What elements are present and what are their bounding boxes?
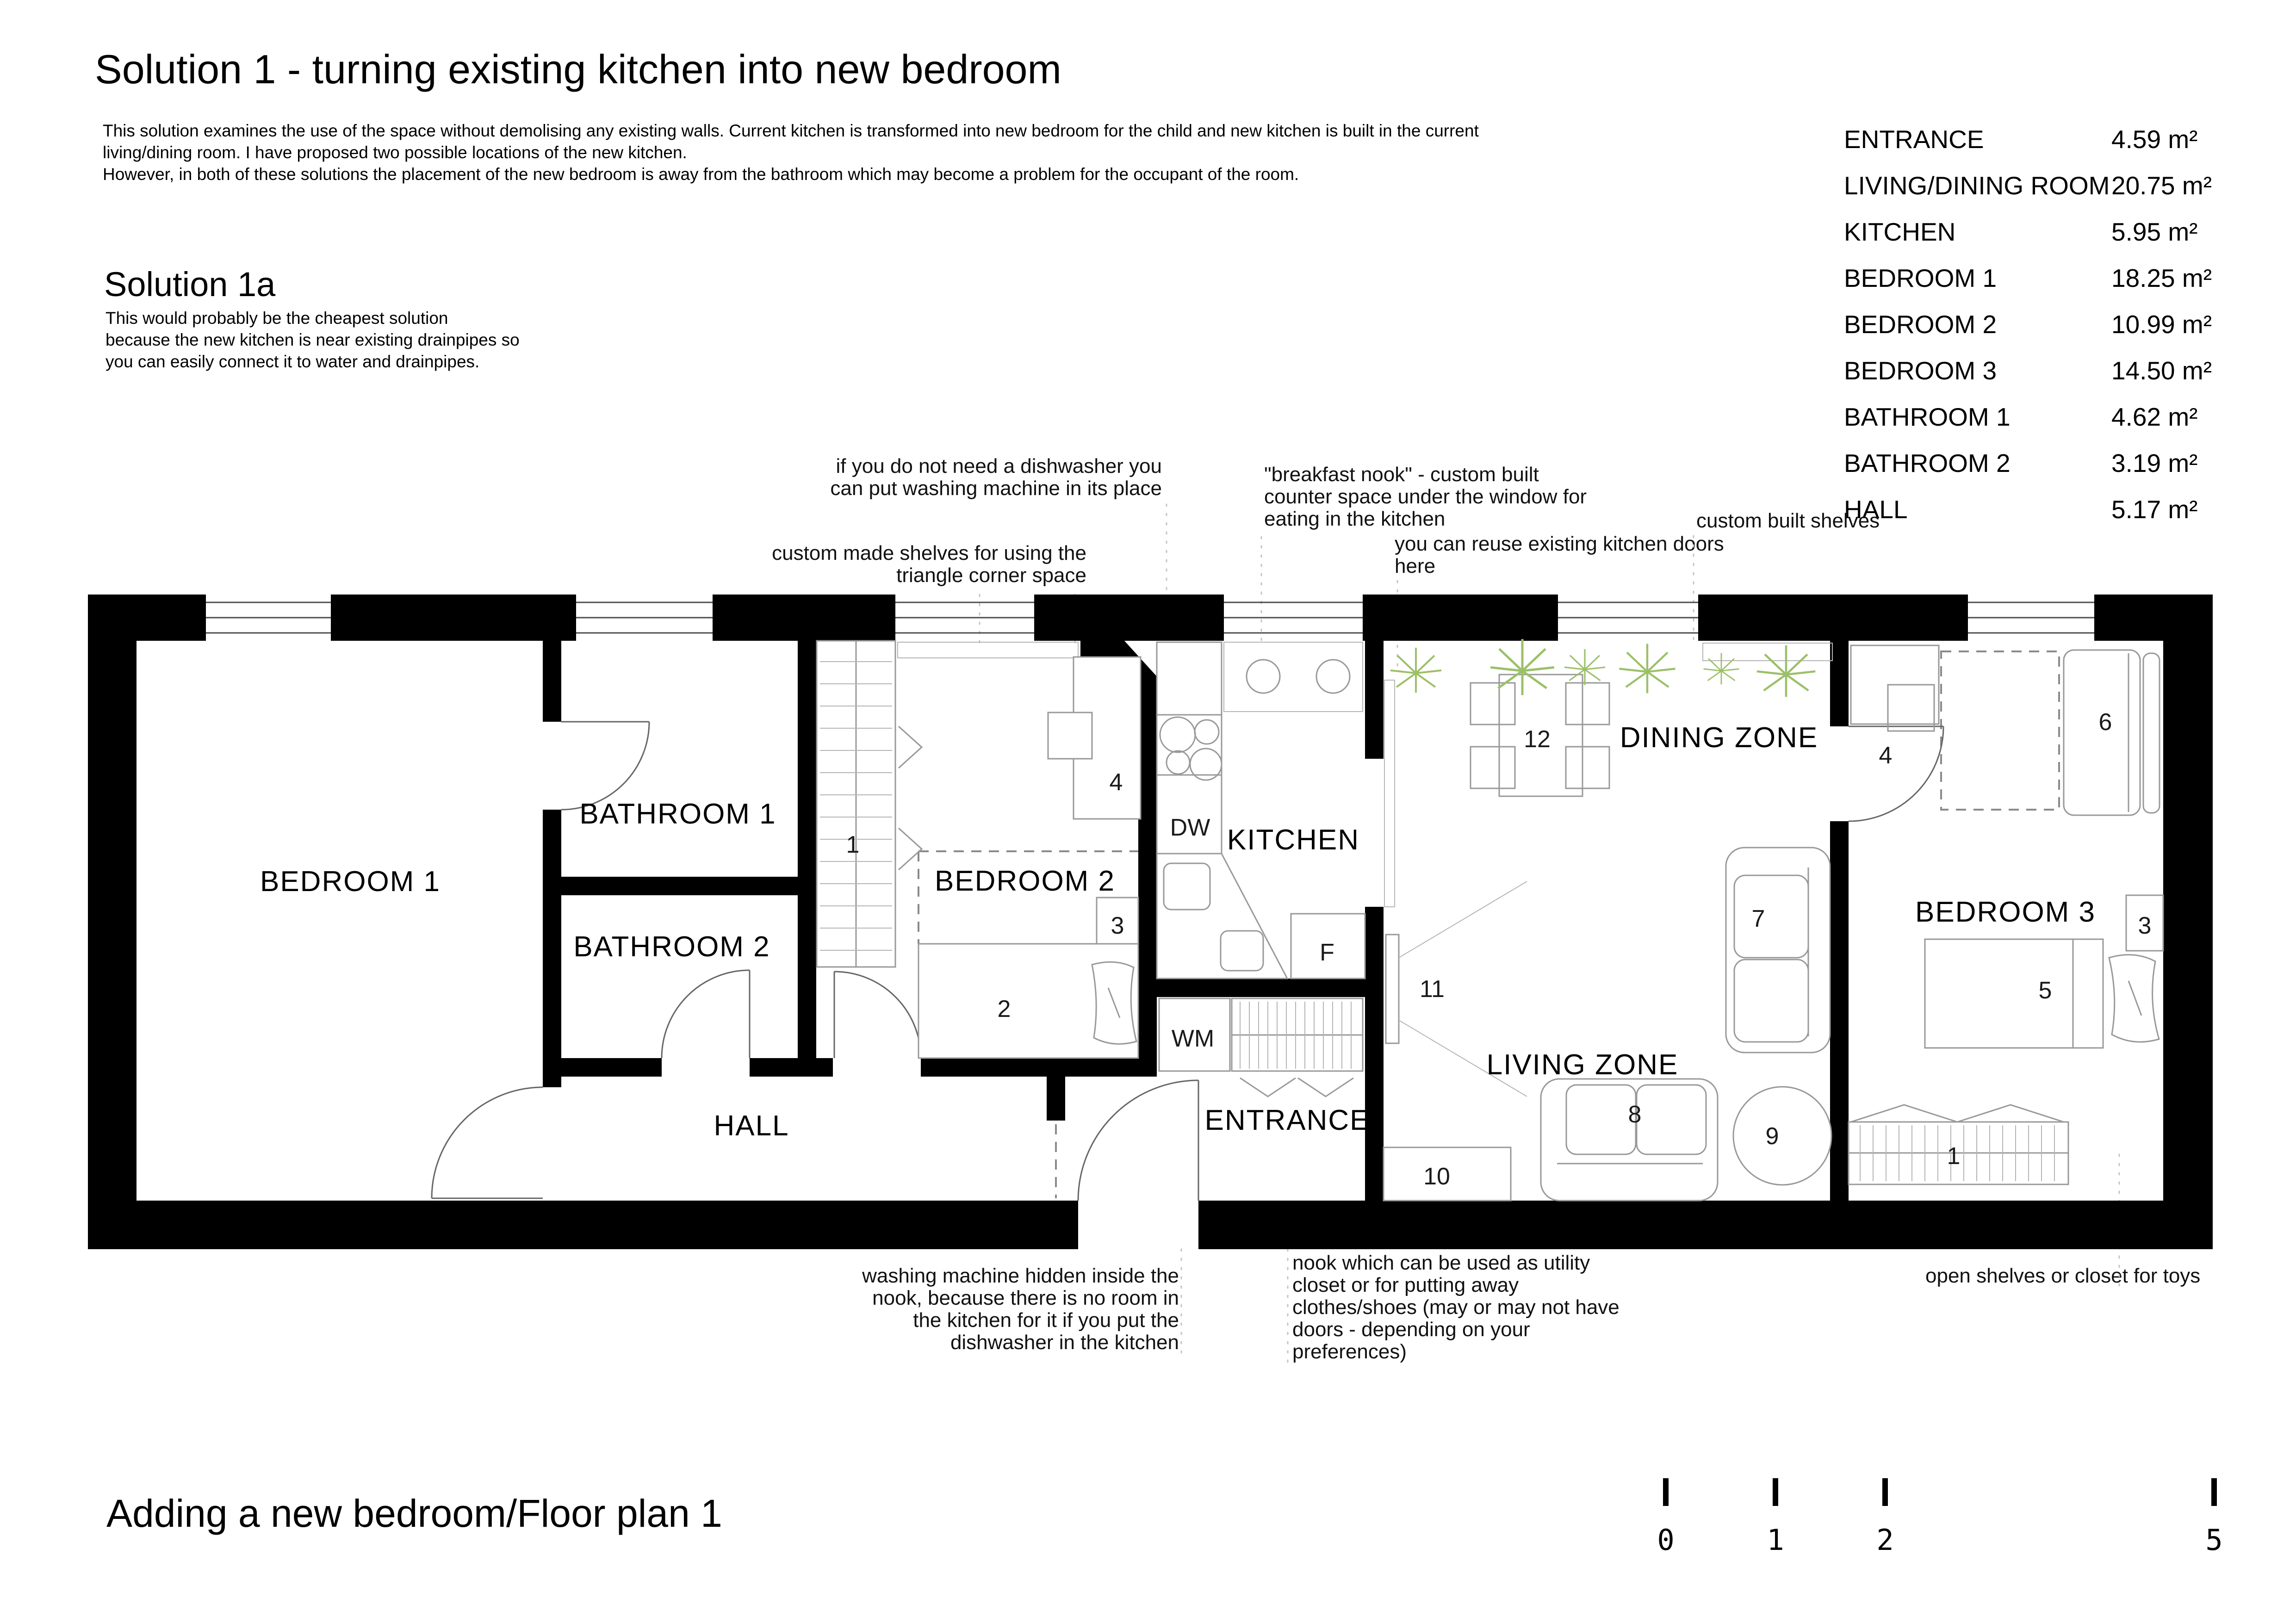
area-value: 20.75 m² bbox=[2111, 171, 2212, 200]
annotation-dishwasher: can put washing machine in its place bbox=[830, 477, 1162, 500]
area-room: BEDROOM 1 bbox=[1844, 264, 1997, 292]
annotation-nook-utility: closet or for putting away bbox=[1292, 1274, 1519, 1296]
bedroom1-door bbox=[432, 1087, 543, 1198]
annotation-custom-shelves: custom built shelves bbox=[1696, 509, 1880, 532]
annotation-nook-utility: preferences) bbox=[1292, 1340, 1407, 1363]
label-bedroom3: BEDROOM 3 bbox=[1915, 896, 2096, 928]
area-room: BEDROOM 3 bbox=[1844, 356, 1997, 385]
label-washing-machine: WM bbox=[1172, 1025, 1214, 1052]
label-dishwasher: DW bbox=[1170, 814, 1210, 841]
header: Solution 1 - turning existing kitchen in… bbox=[95, 46, 1479, 371]
intro-line: This solution examines the use of the sp… bbox=[103, 121, 1479, 140]
area-value: 14.50 m² bbox=[2111, 356, 2212, 385]
window bbox=[1968, 602, 2094, 633]
window bbox=[206, 602, 331, 633]
area-room: BEDROOM 2 bbox=[1844, 310, 1997, 339]
area-value: 4.62 m² bbox=[2111, 403, 2197, 431]
area-room: LIVING/DINING ROOM bbox=[1844, 171, 2110, 200]
label-dining: DINING ZONE bbox=[1620, 722, 1818, 754]
bathroom2-door bbox=[662, 970, 750, 1058]
footer: Adding a new bedroom/Floor plan 1 0 1 2 … bbox=[106, 1478, 2223, 1557]
label-entrance-cabinet: 10 bbox=[1423, 1163, 1450, 1190]
area-table: ENTRANCE 4.59 m² LIVING/DINING ROOM 20.7… bbox=[1844, 125, 2212, 524]
annotation-washing-machine: the kitchen for it if you put the bbox=[913, 1309, 1179, 1332]
intro-line: living/dining room. I have proposed two … bbox=[103, 143, 687, 162]
bathroom1-door bbox=[561, 722, 649, 810]
annotation-breakfast-nook: counter space under the window for bbox=[1264, 485, 1587, 508]
label-bathroom1: BATHROOM 1 bbox=[579, 798, 776, 830]
window bbox=[1558, 602, 1698, 633]
solution-1a-line: you can easily connect it to water and d… bbox=[105, 352, 479, 371]
annotation-washing-machine: nook, because there is no room in bbox=[872, 1287, 1179, 1309]
label-bedroom1: BEDROOM 1 bbox=[260, 866, 441, 898]
area-value: 4.59 m² bbox=[2111, 125, 2197, 154]
label-sofa-small: 8 bbox=[1628, 1101, 1642, 1128]
label-b3-bed: 6 bbox=[2099, 709, 2112, 736]
scale-tick-label: 1 bbox=[1767, 1523, 1784, 1557]
solution-1a-line: This would probably be the cheapest solu… bbox=[105, 309, 448, 328]
sofa-large bbox=[1726, 848, 1830, 1053]
label-bathroom2: BATHROOM 2 bbox=[573, 931, 770, 963]
label-bedroom2: BEDROOM 2 bbox=[935, 865, 1115, 897]
annotation-nook-utility: clothes/shoes (may or may not have bbox=[1292, 1296, 1620, 1319]
area-value: 5.95 m² bbox=[2111, 217, 2197, 246]
label-b3-daybed: 5 bbox=[2039, 977, 2052, 1004]
scale-bar: 0 1 2 5 bbox=[1657, 1478, 2222, 1557]
label-living: LIVING ZONE bbox=[1487, 1049, 1679, 1081]
windowsill-plants bbox=[1390, 639, 1815, 697]
label-b2-desk: 4 bbox=[1110, 769, 1123, 796]
b2-chair bbox=[1048, 712, 1092, 759]
page-title: Solution 1 - turning existing kitchen in… bbox=[95, 46, 1061, 92]
floor-plan-sheet: Solution 1 - turning existing kitchen in… bbox=[0, 0, 2296, 1623]
solution-1a-title: Solution 1a bbox=[104, 265, 276, 304]
bar-stool bbox=[1316, 660, 1350, 693]
entrance-door bbox=[1078, 1080, 1198, 1201]
bedroom2-door bbox=[834, 972, 921, 1058]
label-b2-bed: 2 bbox=[998, 996, 1011, 1022]
annotation-corner-shelves: custom made shelves for using the bbox=[772, 542, 1086, 564]
label-b3-desk: 4 bbox=[1879, 742, 1893, 769]
label-b3-shelf: 1 bbox=[1947, 1143, 1961, 1170]
window bbox=[1224, 602, 1363, 633]
label-coffee-table: 9 bbox=[1766, 1123, 1779, 1150]
tv bbox=[1386, 935, 1399, 1043]
intro-line: However, in both of these solutions the … bbox=[103, 165, 1299, 184]
label-hall: HALL bbox=[714, 1110, 789, 1142]
annotation-dishwasher: if you do not need a dishwasher you bbox=[836, 455, 1162, 477]
area-value: 3.19 m² bbox=[2111, 449, 2197, 477]
sink-basin bbox=[1221, 931, 1263, 971]
scale-tick-label: 5 bbox=[2205, 1523, 2222, 1557]
area-room: ENTRANCE bbox=[1844, 125, 1984, 154]
drawing-canvas: Solution 1 - turning existing kitchen in… bbox=[0, 0, 2296, 1623]
solution-1a-line: because the new kitchen is near existing… bbox=[105, 330, 520, 349]
label-hall-closet: 1 bbox=[846, 831, 860, 858]
bar-stool bbox=[1247, 660, 1280, 693]
annotation-washing-machine: dishwasher in the kitchen bbox=[950, 1331, 1179, 1354]
window bbox=[895, 602, 1034, 633]
label-b2-shelf: 3 bbox=[1111, 912, 1124, 939]
label-fridge: F bbox=[1320, 939, 1334, 966]
bedroom3-door bbox=[1849, 726, 1943, 821]
label-dining-table: 12 bbox=[1524, 726, 1551, 753]
kitchen-fixtures bbox=[1157, 642, 1365, 979]
label-b3-nightstand: 3 bbox=[2138, 912, 2152, 939]
annotation-breakfast-nook: eating in the kitchen bbox=[1264, 508, 1445, 530]
area-room: BATHROOM 2 bbox=[1844, 449, 2011, 477]
sink-basin bbox=[1164, 863, 1210, 910]
coffee-table bbox=[1733, 1087, 1831, 1185]
bedroom2-furniture bbox=[898, 642, 1141, 1058]
annotation-breakfast-nook: "breakfast nook" - custom built bbox=[1264, 463, 1539, 486]
annotation-nook-utility: doors - depending on your bbox=[1292, 1318, 1530, 1341]
label-kitchen: KITCHEN bbox=[1227, 824, 1359, 856]
scale-tick-label: 2 bbox=[1876, 1523, 1893, 1557]
annotation-washing-machine: washing machine hidden inside the bbox=[862, 1264, 1179, 1287]
sheet-title: Adding a new bedroom/Floor plan 1 bbox=[106, 1492, 722, 1535]
annotation-open-shelves: open shelves or closet for toys bbox=[1925, 1264, 2200, 1287]
label-entrance: ENTRANCE bbox=[1204, 1104, 1370, 1136]
scale-tick-label: 0 bbox=[1657, 1523, 1674, 1557]
label-tv: 11 bbox=[1420, 976, 1445, 1003]
annotation-reuse-doors: you can reuse existing kitchen doors bbox=[1395, 533, 1724, 555]
window bbox=[576, 602, 713, 633]
b3-proposed-bed-area bbox=[1941, 651, 2059, 810]
label-sofa-large: 7 bbox=[1752, 905, 1765, 932]
reused-kitchen-cabinet bbox=[1384, 680, 1395, 907]
sofa-small bbox=[1541, 1079, 1718, 1201]
b2-wall-shelf bbox=[898, 642, 1078, 658]
area-value: 10.99 m² bbox=[2111, 310, 2212, 339]
area-value: 18.25 m² bbox=[2111, 264, 2212, 292]
area-room: KITCHEN bbox=[1844, 217, 1955, 246]
annotation-corner-shelves: triangle corner space bbox=[896, 564, 1086, 587]
annotation-nook-utility: nook which can be used as utility bbox=[1292, 1251, 1590, 1274]
annotation-reuse-doors: here bbox=[1395, 555, 1435, 577]
area-room: BATHROOM 1 bbox=[1844, 403, 2011, 431]
hall-closet bbox=[817, 641, 922, 967]
breakfast-nook-counter bbox=[1224, 642, 1363, 712]
area-value: 5.17 m² bbox=[2111, 495, 2197, 524]
